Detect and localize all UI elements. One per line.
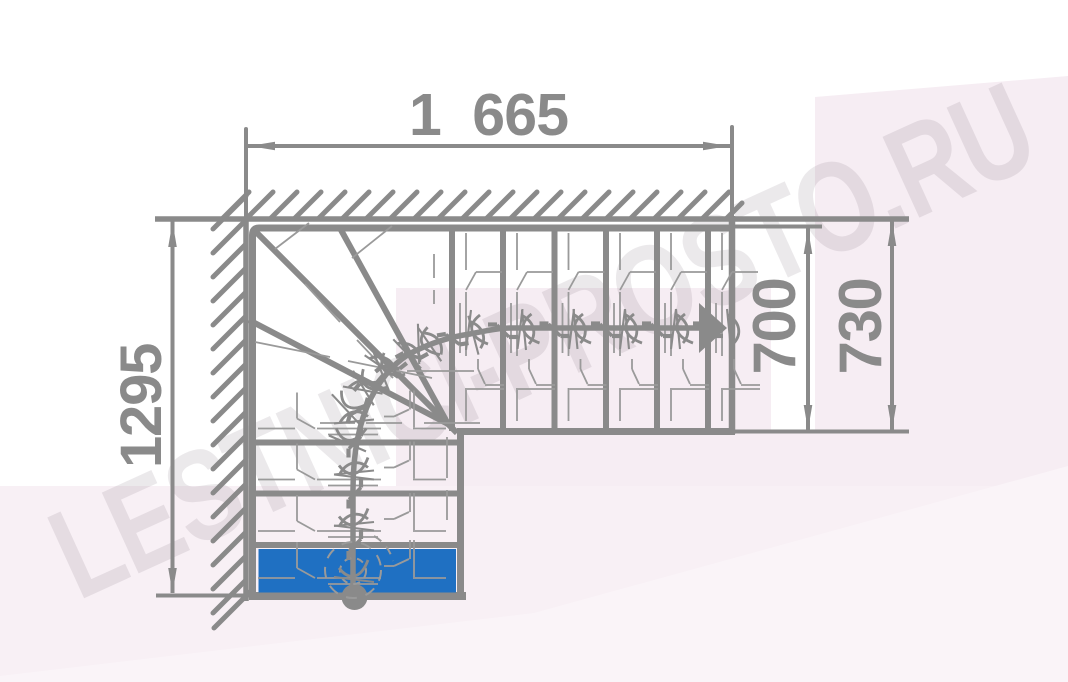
svg-text:730: 730 bbox=[827, 279, 894, 375]
svg-text:1295: 1295 bbox=[109, 344, 174, 468]
svg-text:1 665: 1 665 bbox=[409, 82, 568, 148]
svg-text:700: 700 bbox=[741, 279, 808, 375]
